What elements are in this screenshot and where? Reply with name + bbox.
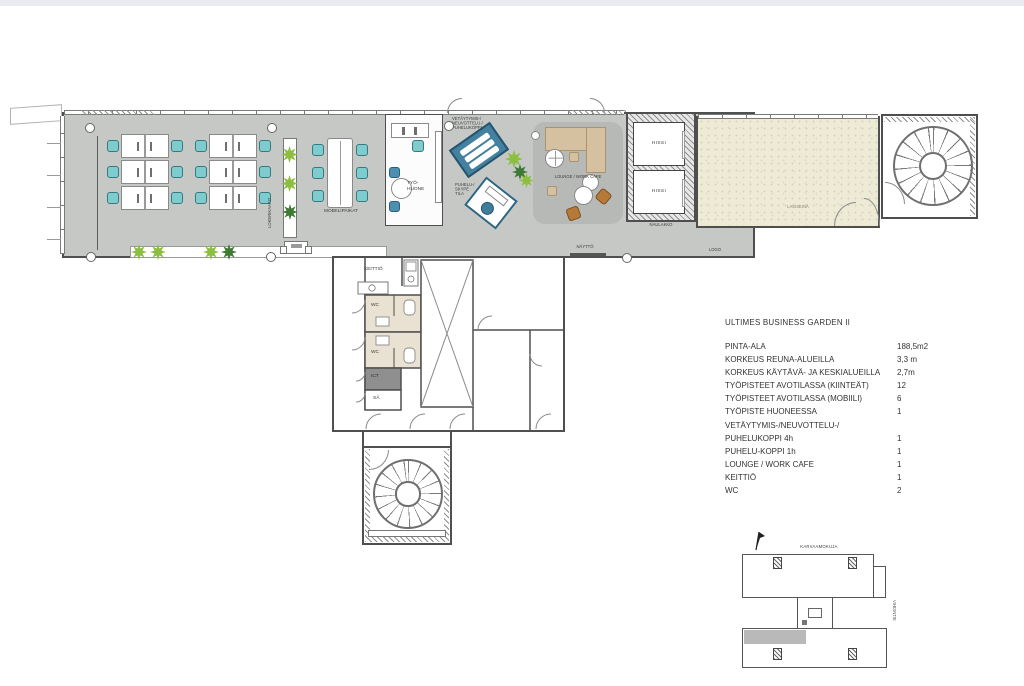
stair-wall-hatch bbox=[365, 537, 449, 542]
wall-tick bbox=[47, 239, 61, 240]
chair-icon bbox=[594, 187, 612, 205]
window-band-left bbox=[60, 116, 65, 254]
printer-tray bbox=[280, 246, 287, 254]
chair-icon bbox=[389, 201, 400, 212]
elevator-core-icon bbox=[848, 557, 857, 569]
tyohuone-label: TYÖ- HUONE bbox=[407, 181, 424, 192]
cabinet bbox=[435, 131, 442, 203]
site-plan: KARVAAMOKUJA VIHDINTIE bbox=[726, 522, 922, 682]
mobiili-table bbox=[327, 138, 353, 208]
booth-chair-icon bbox=[478, 199, 496, 217]
wall bbox=[450, 432, 452, 447]
stair-wall-hatch bbox=[444, 449, 449, 542]
north-arrow-icon bbox=[750, 526, 768, 552]
lounge-label: LOUNGE / WORK CAFE bbox=[549, 175, 608, 180]
monitor-icon bbox=[225, 168, 228, 177]
desk-pair bbox=[121, 134, 169, 158]
keittio-label: KEITTIÖ bbox=[364, 267, 383, 272]
printer-top bbox=[291, 244, 302, 248]
desk-row bbox=[195, 160, 271, 184]
terrace-area: LASISEINÄ bbox=[696, 116, 880, 228]
site-connector bbox=[797, 597, 833, 629]
spec-label: LOUNGE / WORK CAFE bbox=[725, 460, 897, 473]
monitor-icon bbox=[150, 168, 153, 177]
hissi-label: HISSI bbox=[639, 141, 679, 146]
plant-icon bbox=[519, 173, 534, 188]
spec-row: TYÖPISTE HUONEESSA1 bbox=[725, 407, 937, 420]
spec-row: PUHELU-KOPPI 1h1 bbox=[725, 447, 937, 460]
locker-label: LOKERIKAAPIT bbox=[268, 198, 273, 228]
desk-row bbox=[107, 186, 183, 210]
wc-label: WC bbox=[371, 303, 379, 308]
chair-icon bbox=[312, 167, 324, 179]
site-wing-bottom bbox=[742, 628, 887, 668]
chair-icon bbox=[565, 205, 582, 222]
stem-rooms-plan bbox=[332, 256, 565, 432]
chair-icon bbox=[412, 140, 424, 152]
printer-tray bbox=[305, 246, 312, 254]
column bbox=[622, 253, 632, 263]
spec-label: VETÄYTYMIS-/NEUVOTTELU-/ bbox=[725, 421, 897, 434]
printer-icon bbox=[284, 241, 308, 254]
desk bbox=[391, 123, 429, 138]
desk-row bbox=[107, 134, 183, 158]
chair-icon bbox=[195, 192, 207, 204]
monitor-icon bbox=[137, 168, 140, 177]
chair-icon bbox=[356, 190, 368, 202]
desk-row bbox=[195, 134, 271, 158]
monitor-icon bbox=[225, 194, 228, 203]
elevator-2: HISSI bbox=[633, 170, 685, 214]
elevator-1: HISSI bbox=[633, 122, 685, 166]
round-table bbox=[574, 186, 593, 205]
monitor-icon bbox=[150, 194, 153, 203]
street-top-label: KARVAAMOKUJA bbox=[777, 545, 861, 550]
spec-row: TYÖPISTEET AVOTILASSA (MOBIILI)6 bbox=[725, 394, 937, 407]
canopy-outline bbox=[10, 104, 62, 125]
connector-core-icon bbox=[808, 608, 822, 618]
plant-icon bbox=[281, 146, 298, 163]
spec-value: 6 bbox=[897, 394, 937, 407]
plant-icon bbox=[150, 244, 166, 260]
spec-row: PUHELUKOPPI 4h1 bbox=[725, 434, 937, 447]
chair-icon bbox=[107, 166, 119, 178]
spiral-stair-bottom bbox=[373, 459, 443, 529]
spec-value: 3,3 m bbox=[897, 355, 937, 368]
wall-tick bbox=[47, 207, 61, 208]
plant-icon bbox=[282, 204, 298, 220]
hissi-label: HISSI bbox=[639, 189, 679, 194]
spec-value: 188,5m2 bbox=[897, 342, 937, 355]
monitor-icon bbox=[402, 127, 405, 135]
spec-value: 1 bbox=[897, 460, 937, 473]
spec-label: TYÖPISTEET AVOTILASSA (MOBIILI) bbox=[725, 394, 897, 407]
stair-room-bottom bbox=[362, 446, 452, 545]
monitor-icon bbox=[150, 142, 153, 151]
spec-label: PUHELUKOPPI 4h bbox=[725, 434, 897, 447]
lounge-area: LOUNGE / WORK CAFE bbox=[533, 122, 623, 224]
spec-label: KEITTIÖ bbox=[725, 473, 897, 486]
door-arc bbox=[864, 198, 880, 226]
sofa bbox=[586, 127, 606, 173]
chair-icon bbox=[107, 140, 119, 152]
dimension-line bbox=[97, 136, 98, 250]
stair-room-top bbox=[881, 114, 978, 219]
spec-value: 1 bbox=[897, 434, 937, 447]
column bbox=[85, 123, 95, 133]
monitor-icon bbox=[238, 194, 241, 203]
spec-label: TYÖPISTE HUONEESSA bbox=[725, 407, 897, 420]
plant-icon bbox=[221, 244, 237, 260]
desk-pair bbox=[209, 160, 257, 184]
plant-icon bbox=[131, 244, 147, 260]
chair-icon bbox=[312, 144, 324, 156]
monitor-icon bbox=[137, 142, 140, 151]
spec-value: 2 bbox=[897, 486, 937, 499]
spec-row: VETÄYTYMIS-/NEUVOTTELU-/ bbox=[725, 421, 937, 434]
naytto-label: NÄYTTÖ bbox=[569, 245, 601, 250]
spec-row: KORKEUS KÄYTÄVÄ- JA KESKIALUEILLA2,7m bbox=[725, 368, 937, 381]
spec-row: LOUNGE / WORK CAFE1 bbox=[725, 460, 937, 473]
elevator-core-icon bbox=[773, 557, 782, 569]
tyohuone-room: TYÖ- HUONE bbox=[385, 114, 443, 226]
wc-label: WC bbox=[371, 350, 379, 355]
spec-label: PINTA-ALA bbox=[725, 342, 897, 355]
desk-pair bbox=[209, 134, 257, 158]
chair-icon bbox=[195, 166, 207, 178]
wall-tick bbox=[47, 143, 61, 144]
glazing-hatch-left bbox=[80, 110, 154, 115]
spec-label: TYÖPISTEET AVOTILASSA (KIINTEÄT) bbox=[725, 381, 897, 394]
spiral-stair-top bbox=[893, 126, 973, 206]
spec-value: 12 bbox=[897, 381, 937, 394]
chair-icon bbox=[389, 167, 400, 178]
wall-tick bbox=[47, 175, 61, 176]
monitor-icon bbox=[414, 127, 417, 135]
monitor-icon bbox=[238, 142, 241, 151]
chair-icon bbox=[171, 140, 183, 152]
column bbox=[444, 121, 454, 131]
spec-row: TYÖPISTEET AVOTILASSA (KIINTEÄT)12 bbox=[725, 381, 937, 394]
spec-row: PINTA-ALA188,5m2 bbox=[725, 342, 937, 355]
chair-icon bbox=[356, 144, 368, 156]
door-arc bbox=[590, 98, 605, 113]
floor-plan: LOKERIKAAPIT MOBIILIPAIKAT TYÖ- HUONE bbox=[0, 0, 1024, 686]
desk-row bbox=[107, 160, 183, 184]
spec-row: KEITTIÖ1 bbox=[725, 473, 937, 486]
chair-icon bbox=[195, 140, 207, 152]
monitor-icon bbox=[238, 168, 241, 177]
spec-label: WC bbox=[725, 486, 897, 499]
floor-lamp-icon bbox=[531, 131, 540, 140]
chair-icon bbox=[312, 190, 324, 202]
desk-row bbox=[195, 186, 271, 210]
column bbox=[266, 252, 276, 262]
plant-icon bbox=[203, 244, 219, 260]
spec-value bbox=[897, 421, 937, 434]
spec-value: 1 bbox=[897, 473, 937, 486]
chair-icon bbox=[171, 166, 183, 178]
spec-row: WC2 bbox=[725, 486, 937, 499]
door-arc bbox=[834, 202, 856, 226]
desk-pair bbox=[209, 186, 257, 210]
lasiseina-label: LASISEINÄ bbox=[777, 205, 819, 210]
window-band-terrace bbox=[698, 114, 878, 119]
wall bbox=[362, 432, 364, 447]
monitor-icon bbox=[225, 142, 228, 151]
door-arc bbox=[447, 98, 462, 113]
puhelu-label: PUHELU-/ SKYPE TILA bbox=[455, 183, 475, 197]
elevator-door bbox=[682, 179, 685, 207]
logo-label: LOGO bbox=[705, 248, 726, 253]
desk-pair bbox=[121, 186, 169, 210]
stair-wall-hatch bbox=[884, 117, 975, 122]
vetaytymis-label: VETÄYTYMIS-/ NEUVOTTELU-/ PUHELUKOPPI bbox=[452, 117, 483, 131]
column bbox=[86, 252, 96, 262]
spec-label: KORKEUS KÄYTÄVÄ- JA KESKIALUEILLA bbox=[725, 368, 897, 381]
stool bbox=[569, 152, 579, 162]
site-wing-top-step bbox=[873, 566, 886, 598]
location-highlight bbox=[744, 630, 806, 644]
stool bbox=[547, 186, 557, 196]
spec-value: 1 bbox=[897, 447, 937, 460]
round-table bbox=[545, 149, 564, 168]
display-screen bbox=[570, 253, 606, 256]
page: { "plan": { "open_office": { "lokerikaap… bbox=[0, 0, 1024, 686]
connector-mark bbox=[802, 620, 807, 625]
ict-label: ICT bbox=[371, 374, 379, 379]
plant-icon bbox=[281, 175, 298, 192]
monitor-icon bbox=[137, 194, 140, 203]
chair-icon bbox=[356, 167, 368, 179]
sa-label: SÄ bbox=[373, 396, 379, 401]
column bbox=[267, 123, 277, 133]
spec-value: 1 bbox=[897, 407, 937, 420]
street-right-label: VIHDINTIE bbox=[891, 600, 896, 621]
spec-row: KORKEUS REUNA-ALUEILLA3,3 m bbox=[725, 355, 937, 368]
spec-label: KORKEUS REUNA-ALUEILLA bbox=[725, 355, 897, 368]
spec-title: ULTIMES BUSINESS GARDEN II bbox=[725, 318, 937, 331]
chair-icon bbox=[259, 166, 271, 178]
spec-table: ULTIMES BUSINESS GARDEN II PINTA-ALA188,… bbox=[725, 318, 937, 499]
table-divider bbox=[340, 141, 341, 205]
elevator-door bbox=[682, 131, 685, 159]
desk-pair bbox=[121, 160, 169, 184]
spec-label: PUHELU-KOPPI 1h bbox=[725, 447, 897, 460]
stair-landing bbox=[368, 530, 446, 537]
elevator-core-icon bbox=[848, 648, 857, 660]
naulakko-label: NAULAKKO bbox=[640, 223, 682, 228]
spec-value: 2,7m bbox=[897, 368, 937, 381]
mobiili-label: MOBIILIPAIKAT bbox=[313, 209, 369, 214]
elevator-core-icon bbox=[773, 648, 782, 660]
chair-icon bbox=[107, 192, 119, 204]
chair-icon bbox=[171, 192, 183, 204]
chair-icon bbox=[259, 140, 271, 152]
